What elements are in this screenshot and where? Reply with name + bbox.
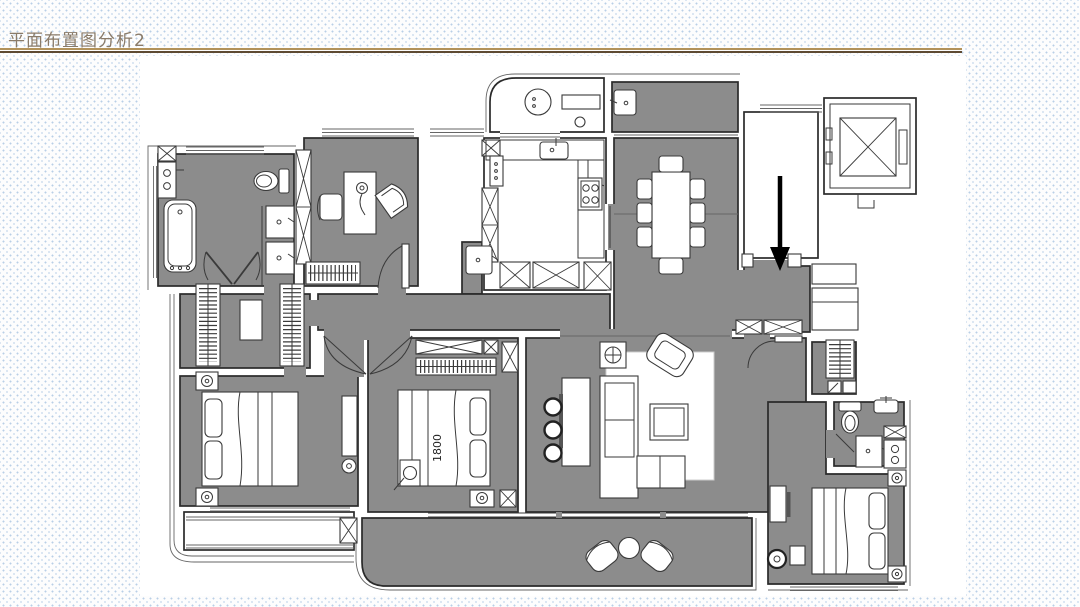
- dining-chair-icon: [637, 179, 652, 247]
- hall-wardrobe-icon: [826, 340, 854, 378]
- wardrobe-icon: [416, 358, 496, 375]
- pillow-icon: [470, 398, 486, 435]
- cabinet-icon: [490, 156, 503, 186]
- left-balcony-floor: [184, 512, 354, 550]
- pillow-icon: [205, 441, 222, 479]
- round-table-icon: [525, 89, 551, 115]
- wardrobe-icon: [280, 284, 304, 366]
- toilet-icon: [254, 169, 289, 193]
- kitchen-cabinets: [500, 262, 611, 290]
- office-chair-icon: [318, 194, 343, 220]
- column-hatch-icon: [340, 518, 357, 543]
- shoe-cabinet-icon: [306, 262, 360, 284]
- column-hatch-icon: [502, 342, 518, 372]
- nightstand-icon: [196, 488, 218, 506]
- dining-table-icon: [652, 172, 690, 258]
- coffee-table-icon: [650, 404, 688, 440]
- column-hatch-icon: [482, 140, 500, 156]
- balcony-floor: [362, 518, 752, 586]
- column-hatch-icon: [500, 490, 516, 507]
- door-jamb: [788, 254, 801, 267]
- nightstand-icon: [470, 490, 494, 507]
- bathtub-icon: [164, 200, 196, 272]
- stool-icon: [545, 399, 562, 462]
- dining-chair-icon: [690, 179, 705, 247]
- stove-icon: [578, 178, 602, 210]
- floor-plan-image: 1800: [0, 0, 1080, 607]
- pillow-icon: [470, 440, 486, 477]
- small-basin-icon: [575, 117, 585, 127]
- nightstand-icon: [888, 566, 906, 582]
- hallway-basin-icon: [610, 90, 636, 115]
- column-hatch-icon: [158, 146, 176, 161]
- double-bed-icon: [812, 488, 888, 574]
- counter-icon: [562, 95, 600, 109]
- stool-icon: [768, 550, 786, 568]
- foyer-closet-hatch-icon: [736, 320, 802, 334]
- wardrobe-hatch-icon: [416, 340, 498, 354]
- side-table-icon: [600, 342, 626, 368]
- kitchen-slider-opening: [602, 204, 608, 250]
- slide: 平面布置图分析2: [0, 0, 1080, 607]
- column-hatch-icon: [884, 426, 906, 438]
- pillow-icon: [869, 533, 885, 569]
- side-table-icon: [790, 546, 805, 565]
- tv-cabinet-icon: [559, 378, 590, 466]
- bed-size-label: 1800: [431, 434, 444, 462]
- wardrobe-icon: [196, 284, 220, 366]
- elevator-cab-icon: [840, 118, 896, 176]
- nightstand-icon: [888, 470, 906, 486]
- balcony-table-icon: [619, 538, 640, 559]
- double-bed-icon: [202, 392, 298, 486]
- column-hatch-icon: [296, 150, 311, 264]
- dining-chair-icon: [659, 156, 683, 172]
- shoe-cabinet-icon: [812, 264, 856, 284]
- door-jamb: [742, 254, 753, 267]
- nightstand-icon: [196, 372, 218, 390]
- pillow-icon: [869, 493, 885, 529]
- closet-island-icon: [240, 300, 262, 340]
- double-vanity-icon: [262, 206, 294, 286]
- dining-chair-icon: [659, 258, 683, 274]
- corridor-floor: [318, 294, 610, 330]
- washing-machine-icon: [884, 440, 906, 468]
- kitchen-balcony-opening: [500, 131, 560, 140]
- tv-icon: [787, 492, 791, 517]
- dressing-table-icon: [342, 396, 357, 473]
- hall-cabinet-icon: [812, 288, 858, 330]
- pillow-icon: [205, 399, 222, 437]
